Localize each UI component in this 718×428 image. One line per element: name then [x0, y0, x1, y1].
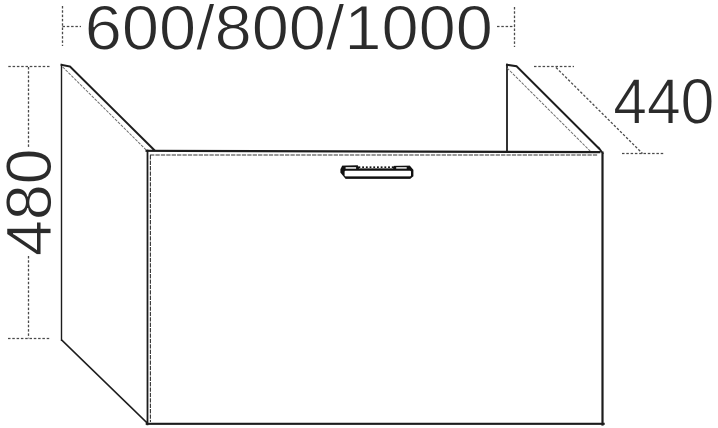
svg-text:440: 440 [613, 66, 714, 138]
svg-text:600/800/1000: 600/800/1000 [85, 0, 493, 64]
svg-text:480: 480 [0, 149, 65, 257]
